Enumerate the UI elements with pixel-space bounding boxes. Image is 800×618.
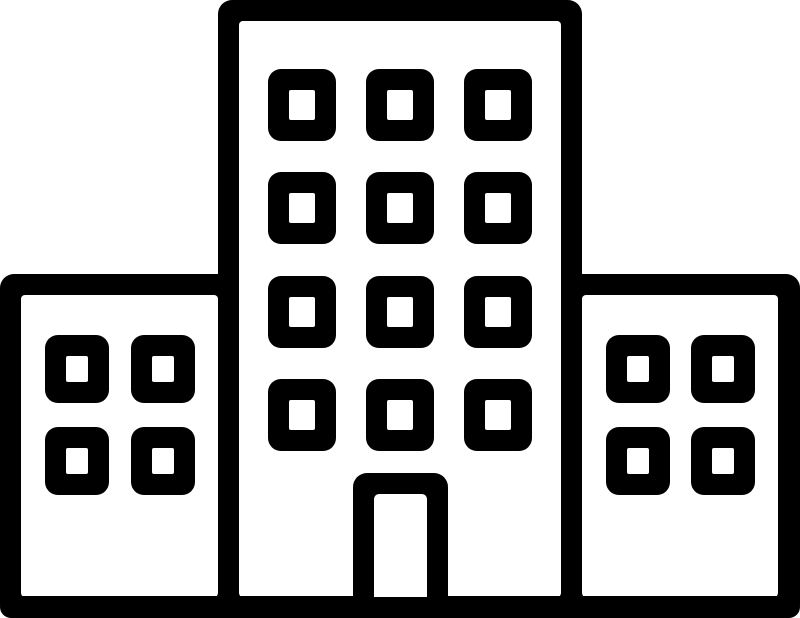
- window-pane: [387, 193, 413, 223]
- door: [353, 473, 448, 618]
- door-interior-lower: [374, 530, 427, 597]
- window-pane: [387, 400, 413, 430]
- left-wing: [0, 274, 239, 618]
- window-pane: [627, 448, 649, 474]
- icon-canvas: [0, 0, 800, 618]
- window-pane: [289, 90, 315, 120]
- window-pane: [387, 90, 413, 120]
- window-pane: [289, 400, 315, 430]
- window-pane: [66, 356, 88, 382]
- window-pane: [627, 356, 649, 382]
- window-pane: [485, 297, 511, 327]
- window-pane: [152, 448, 174, 474]
- building-icon: [0, 0, 800, 618]
- window-pane: [485, 400, 511, 430]
- right-wing: [561, 274, 800, 618]
- window-pane: [485, 90, 511, 120]
- window-pane: [485, 193, 511, 223]
- window-pane: [289, 193, 315, 223]
- window-pane: [387, 297, 413, 327]
- window-pane: [66, 448, 88, 474]
- window-pane: [712, 448, 734, 474]
- window-pane: [152, 356, 174, 382]
- window-pane: [712, 356, 734, 382]
- window-pane: [289, 297, 315, 327]
